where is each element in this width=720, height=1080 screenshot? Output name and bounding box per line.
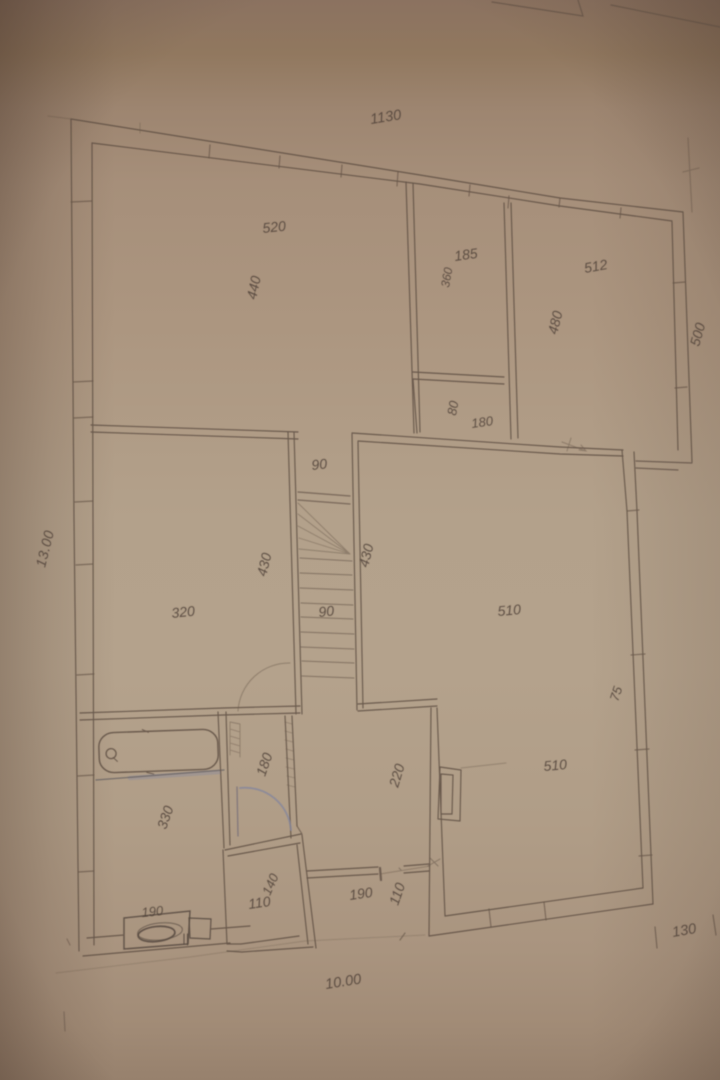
svg-text:510: 510 [543,756,568,774]
svg-text:190: 190 [348,884,374,903]
svg-text:320: 320 [171,603,196,621]
svg-text:90: 90 [318,602,335,620]
svg-text:520: 520 [262,218,287,236]
svg-text:185: 185 [453,245,479,264]
svg-text:510: 510 [497,601,522,619]
svg-text:180: 180 [470,413,494,431]
svg-text:90: 90 [311,455,328,473]
svg-text:190: 190 [141,903,165,920]
